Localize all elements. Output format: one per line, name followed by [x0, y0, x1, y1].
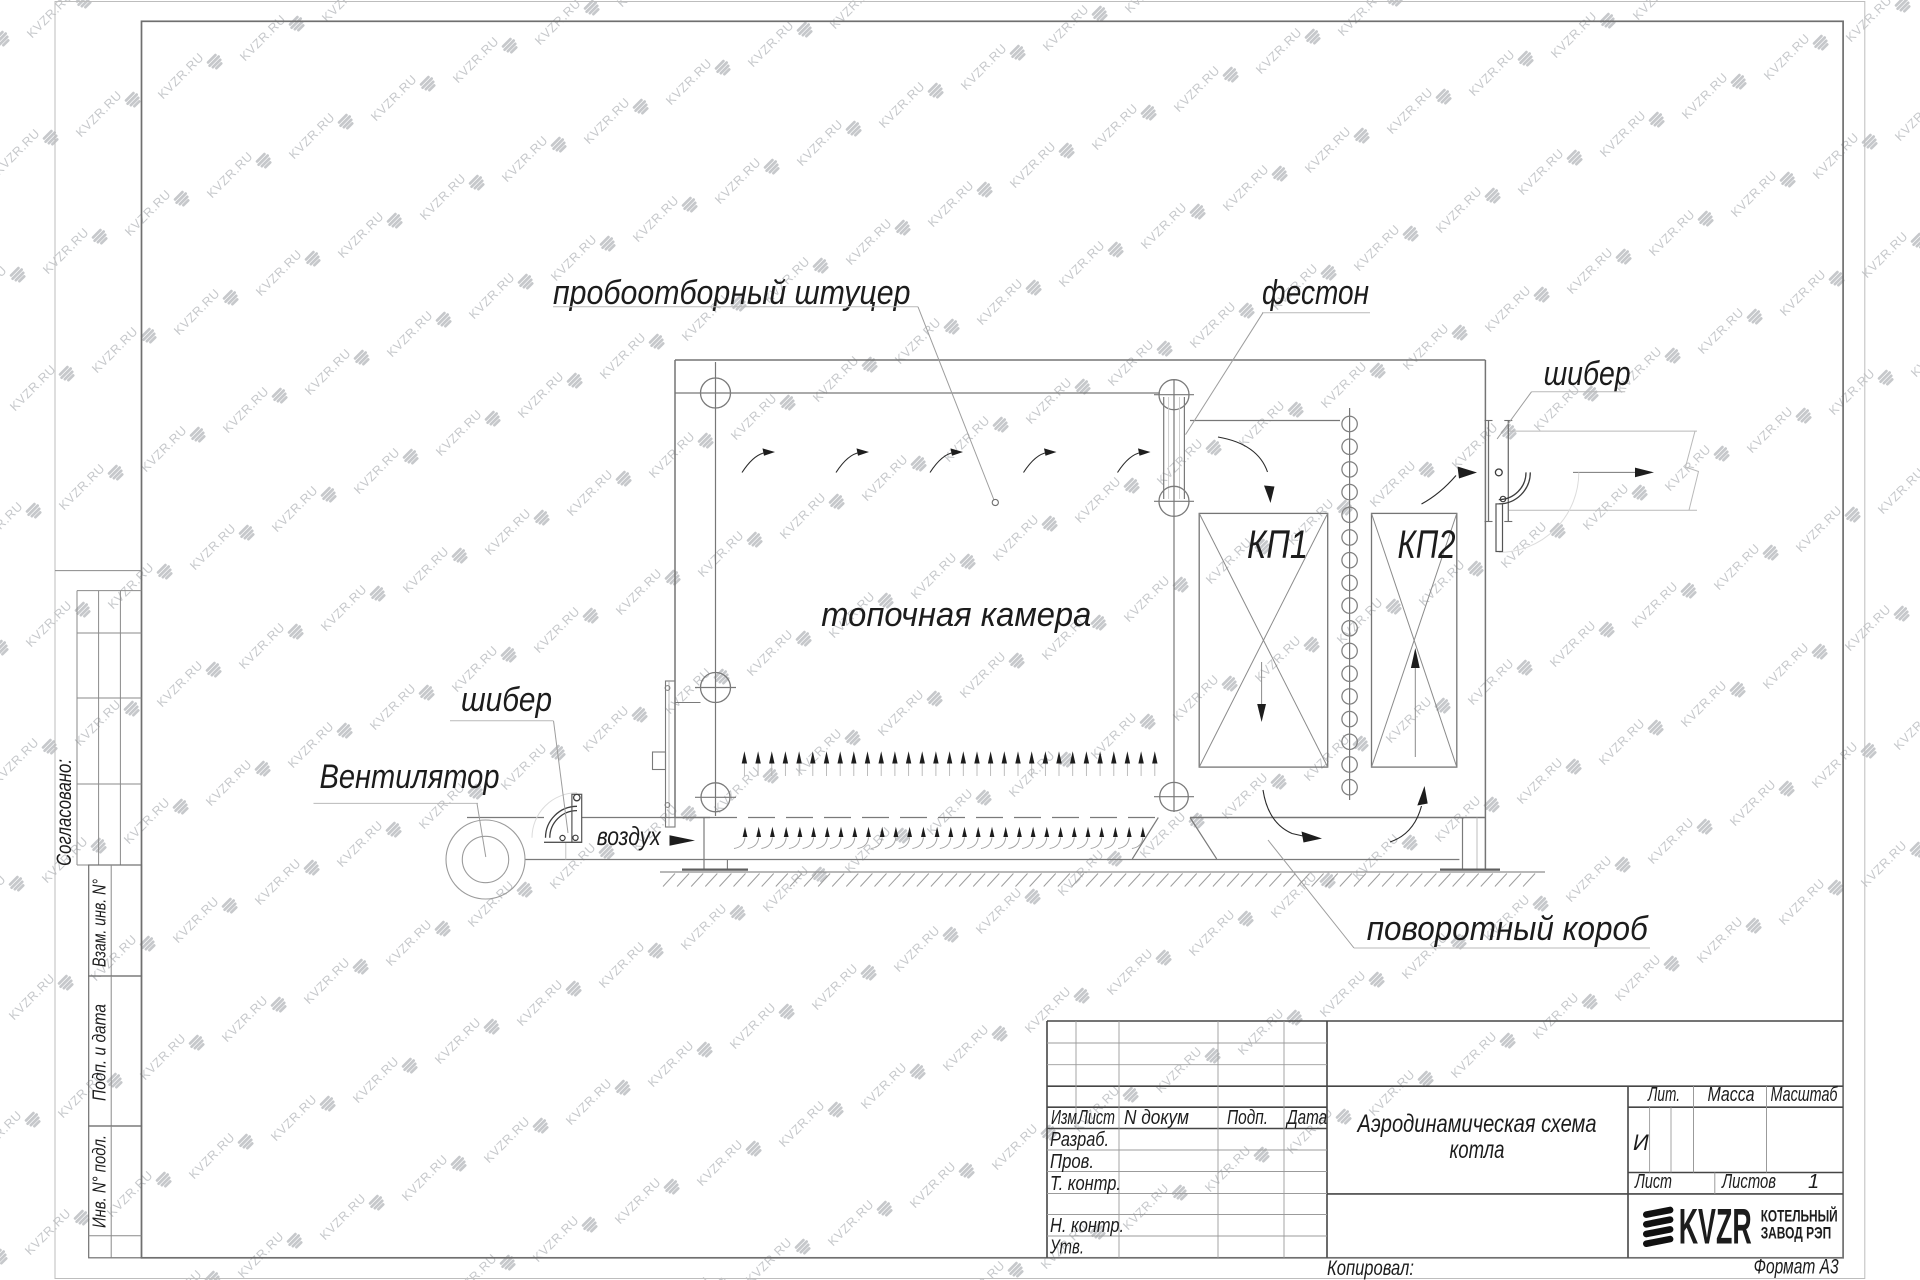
svg-text:Формат А3: Формат А3 — [1754, 1256, 1839, 1279]
svg-text:Изм: Изм — [1051, 1107, 1077, 1129]
svg-text:Согласовано:: Согласовано: — [53, 759, 76, 866]
svg-text:Лит.: Лит. — [1647, 1084, 1680, 1106]
svg-text:KVZR: KVZR — [1679, 1199, 1752, 1255]
svg-text:КП2: КП2 — [1398, 523, 1456, 567]
svg-text:Пров.: Пров. — [1050, 1151, 1094, 1173]
svg-text:фестон: фестон — [1262, 274, 1369, 312]
svg-text:шибер: шибер — [461, 681, 552, 719]
svg-text:Вентилятор: Вентилятор — [320, 758, 500, 796]
svg-text:Взам. инв. N°: Взам. инв. N° — [90, 879, 110, 967]
svg-text:Масштаб: Масштаб — [1771, 1084, 1839, 1106]
svg-text:Подп.: Подп. — [1227, 1107, 1268, 1129]
svg-text:Масса: Масса — [1708, 1084, 1755, 1106]
svg-text:Копировал:: Копировал: — [1327, 1257, 1414, 1280]
svg-text:шибер: шибер — [1544, 355, 1631, 393]
svg-text:Т. контр.: Т. контр. — [1050, 1173, 1121, 1195]
svg-text:Аэродинамическая схема: Аэродинамическая схема — [1356, 1110, 1597, 1138]
svg-text:Листов: Листов — [1721, 1171, 1776, 1193]
svg-text:воздух: воздух — [597, 821, 662, 851]
svg-text:1: 1 — [1808, 1171, 1819, 1193]
svg-text:Утв.: Утв. — [1049, 1237, 1084, 1259]
svg-text:N докум: N докум — [1124, 1107, 1189, 1129]
svg-text:Лист: Лист — [1634, 1171, 1672, 1193]
svg-text:Инв. N° подл.: Инв. N° подл. — [90, 1135, 110, 1228]
svg-text:КП1: КП1 — [1247, 523, 1308, 567]
svg-text:котла: котла — [1450, 1136, 1505, 1164]
svg-text:КОТЕЛЬНЫЙ: КОТЕЛЬНЫЙ — [1761, 1207, 1838, 1226]
svg-text:ЗАВОД РЭП: ЗАВОД РЭП — [1761, 1225, 1832, 1243]
svg-text:Дата: Дата — [1285, 1107, 1327, 1129]
svg-text:Лист: Лист — [1077, 1107, 1115, 1129]
svg-text:топочная камера: топочная камера — [821, 596, 1091, 634]
svg-text:Н. контр.: Н. контр. — [1050, 1215, 1124, 1237]
svg-text:Разраб.: Разраб. — [1050, 1129, 1109, 1151]
svg-text:Подп. и дата: Подп. и дата — [90, 1004, 110, 1101]
svg-text:поворотный короб: поворотный короб — [1367, 910, 1650, 948]
svg-text:И: И — [1633, 1130, 1649, 1155]
